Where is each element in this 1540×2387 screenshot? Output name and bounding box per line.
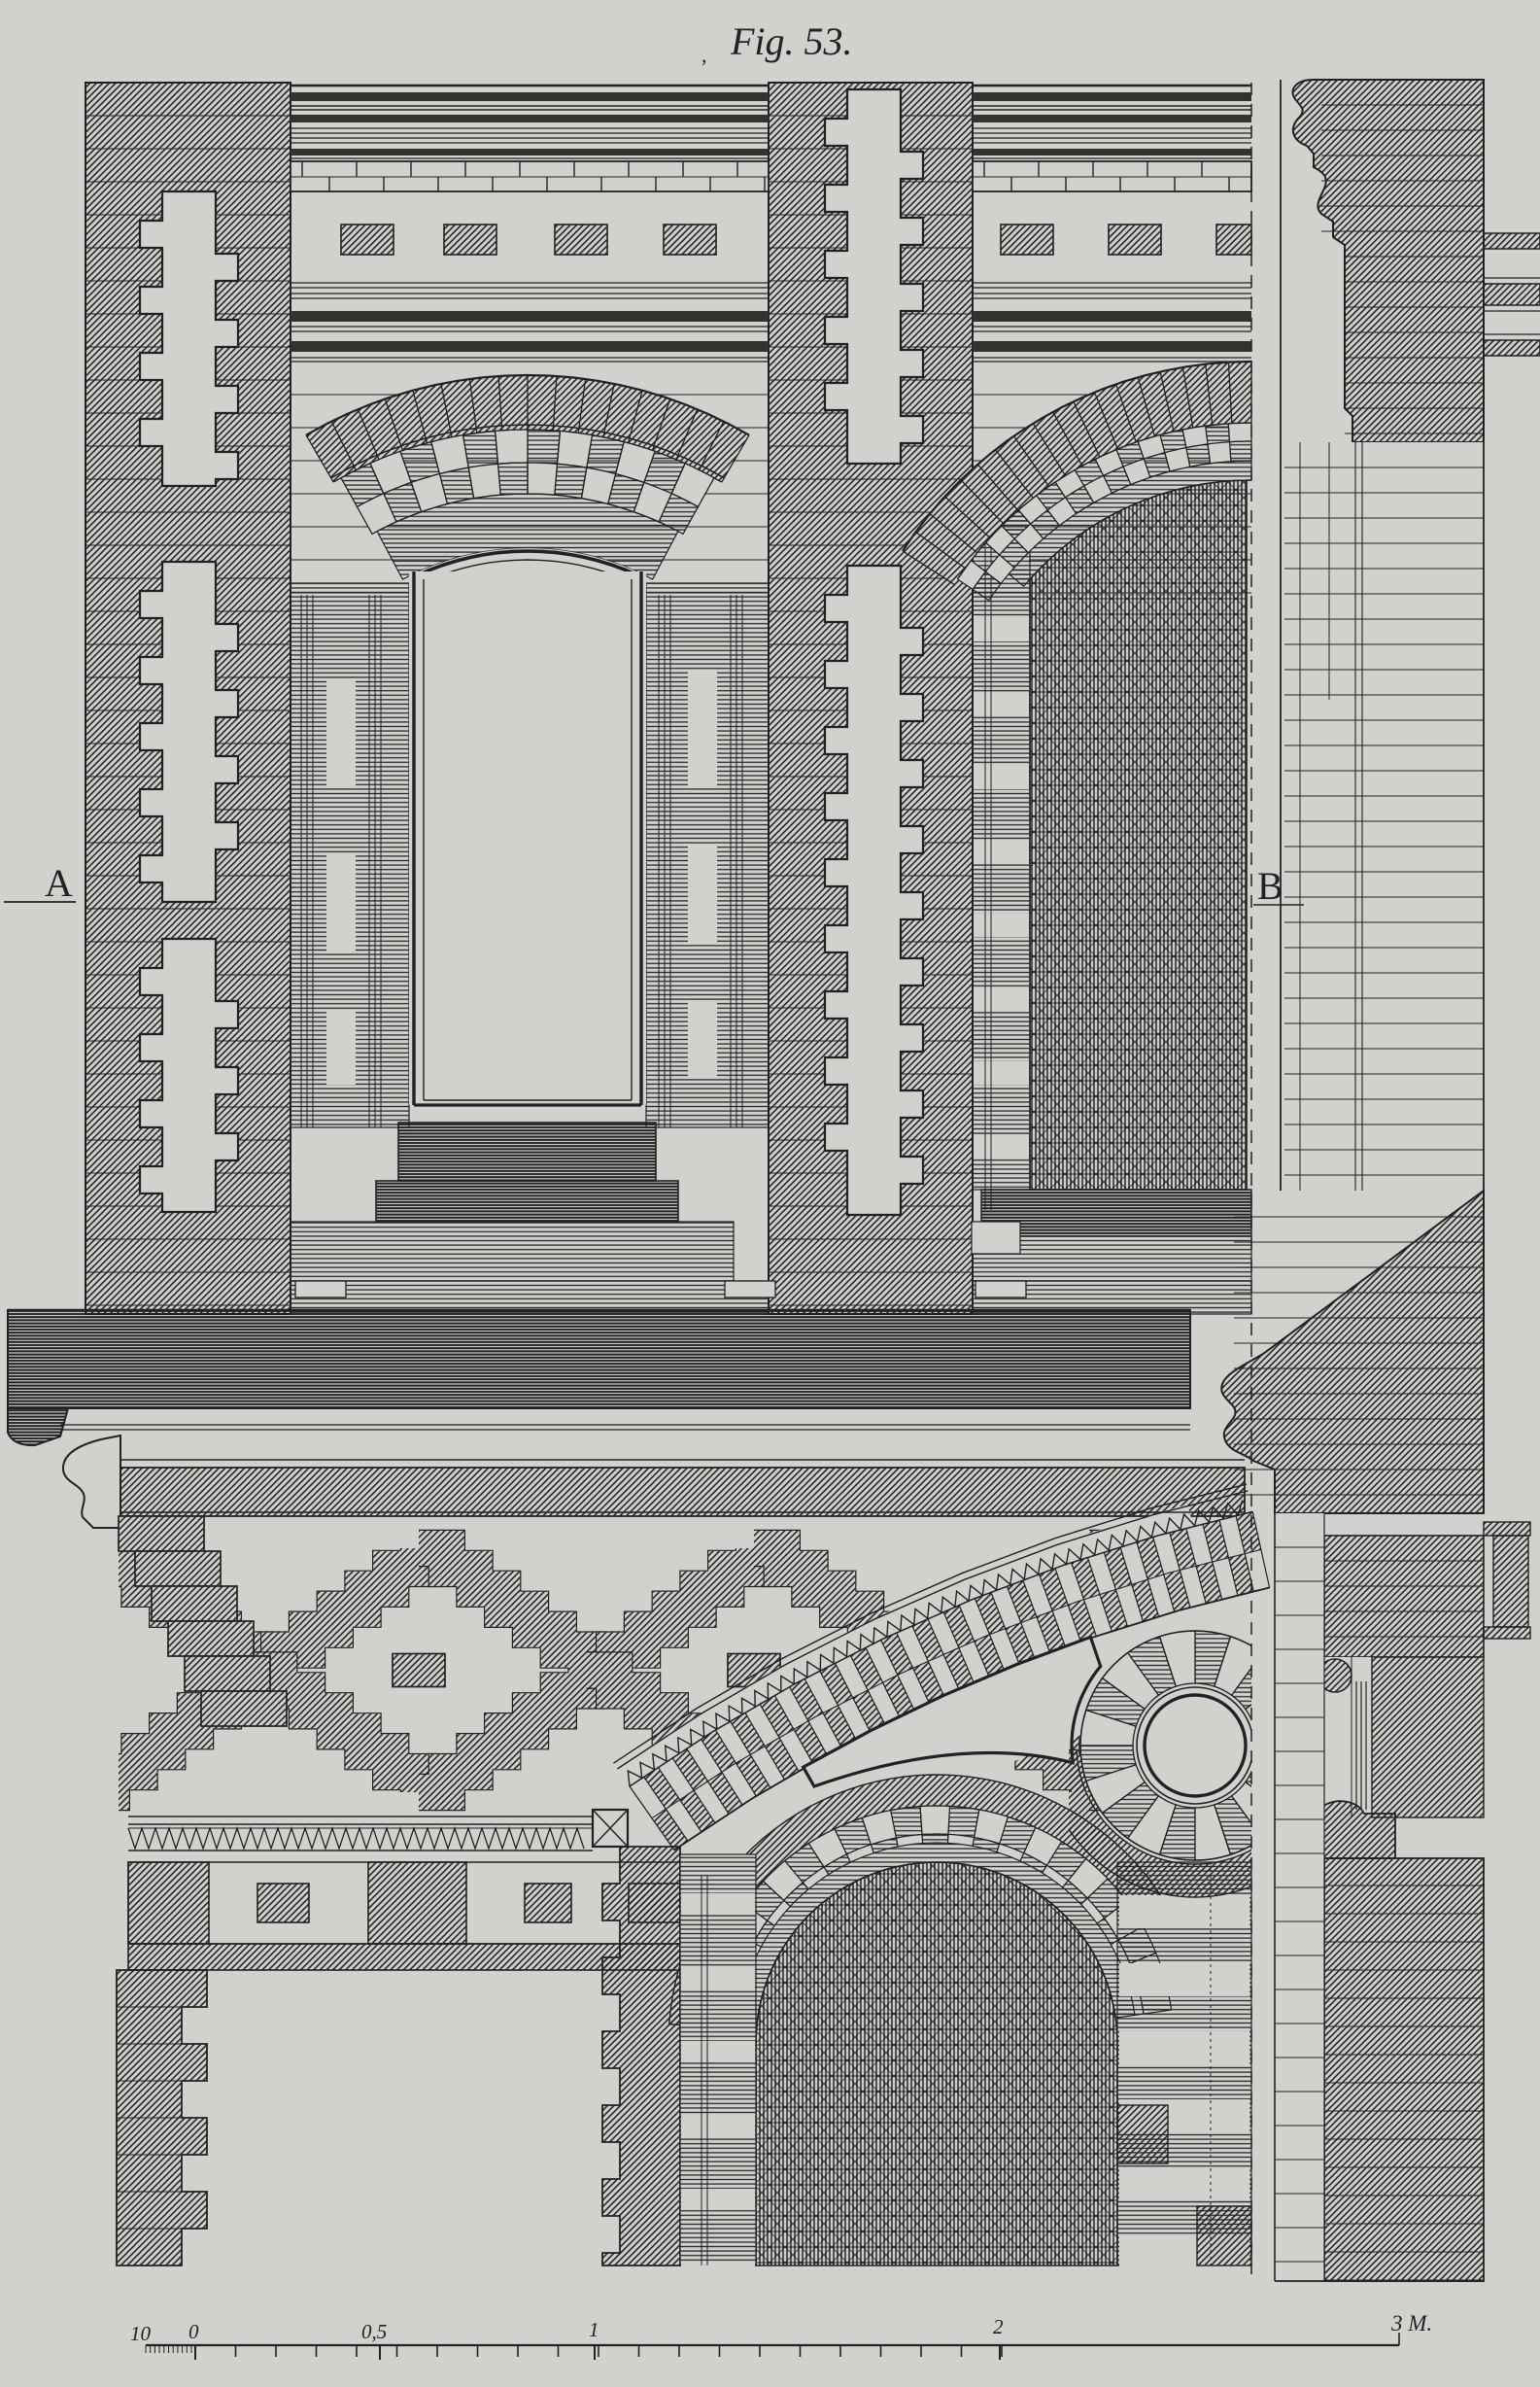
svg-text:2: 2 [993, 2315, 1004, 2338]
svg-text:10: 10 [130, 2322, 152, 2345]
svg-text:,: , [702, 43, 707, 67]
svg-text:0: 0 [188, 2320, 199, 2343]
svg-text:Fig. 53.: Fig. 53. [730, 19, 853, 63]
svg-text:3 M.: 3 M. [1390, 2311, 1432, 2335]
svg-text:B: B [1257, 864, 1283, 908]
svg-text:0,5: 0,5 [361, 2320, 387, 2343]
svg-text:A: A [45, 861, 73, 905]
svg-text:1: 1 [589, 2318, 599, 2341]
